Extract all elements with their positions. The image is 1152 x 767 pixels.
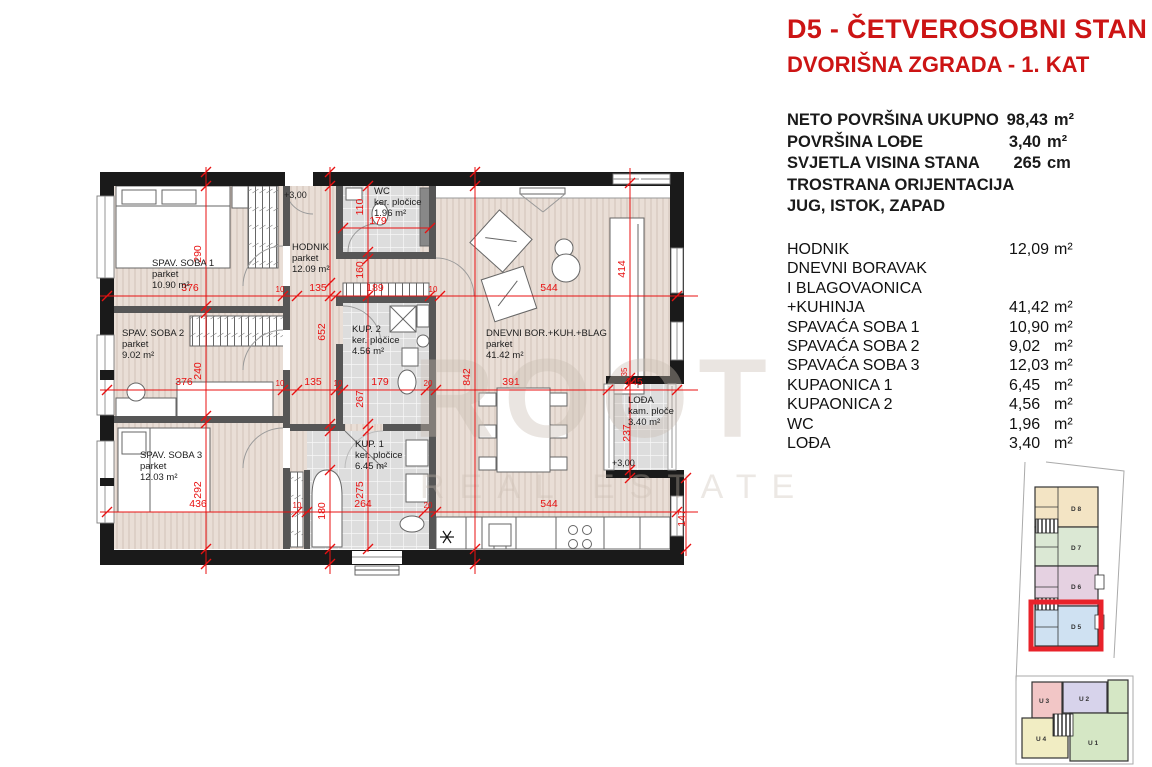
summary-label: JUG, ISTOK, ZAPAD bbox=[787, 196, 981, 218]
room-list-unit: m² bbox=[1054, 337, 1087, 356]
dimension-label: 10 bbox=[276, 379, 285, 388]
summary-label: SVJETLA VISINA STANA bbox=[787, 153, 981, 175]
dimension-label: 652 bbox=[316, 323, 328, 341]
room-floor-label: ker. pločice bbox=[374, 197, 422, 208]
room-list-label: KUPAONICA 2 bbox=[787, 395, 1009, 414]
wardrobe-1 bbox=[248, 186, 278, 268]
room-area-label: 9.02 m² bbox=[122, 350, 154, 361]
room-list-label: SPAVAĆA SOBA 1 bbox=[787, 318, 1009, 337]
level-marker: +3,00 bbox=[284, 190, 307, 200]
window-bedroom1 bbox=[97, 196, 114, 278]
window-symbol bbox=[520, 188, 565, 194]
burner bbox=[583, 526, 592, 535]
summary-unit bbox=[1041, 196, 1085, 218]
room-list-row: SPAVAĆA SOBA 312,03m² bbox=[787, 356, 1087, 375]
site-unit bbox=[1108, 680, 1128, 713]
room-label: SPAV. SOBA 1 bbox=[152, 258, 214, 269]
summary-row: NETO POVRŠINA UKUPNO98,43m² bbox=[787, 110, 1085, 132]
summary-value: 265 bbox=[981, 153, 1041, 175]
wc-sink bbox=[346, 188, 362, 200]
summary-unit: cm bbox=[1041, 153, 1085, 175]
room-list-value: 41,42 bbox=[1009, 298, 1054, 317]
watermark-line1: ROOT bbox=[413, 336, 777, 461]
room-list-unit bbox=[1054, 259, 1087, 278]
summary-label: POVRŠINA LOĐE bbox=[787, 132, 981, 154]
level-marker: +3,00 bbox=[612, 458, 635, 468]
dimension-label: 20 bbox=[424, 379, 433, 388]
dimension-label: 179 bbox=[371, 376, 389, 388]
room-list-label: I BLAGOVAONICA bbox=[787, 279, 1009, 298]
kitchen-counter bbox=[436, 517, 670, 549]
room-list-label: SPAVAĆA SOBA 2 bbox=[787, 337, 1009, 356]
dimension-label: 376 bbox=[175, 376, 193, 388]
room-list-label: HODNIK bbox=[787, 240, 1009, 259]
site-unit-label: D 7 bbox=[1071, 545, 1082, 552]
room-floor-label: ker. pločice bbox=[352, 335, 400, 346]
site-unit-d5 bbox=[1035, 606, 1098, 646]
summary-label: NETO POVRŠINA UKUPNO bbox=[787, 110, 999, 132]
oven bbox=[489, 524, 511, 546]
room-list-label: DNEVNI BORAVAK bbox=[787, 259, 1009, 278]
room-label: WC bbox=[374, 186, 390, 197]
dimension-label: 189 bbox=[366, 282, 384, 294]
room-list-value: 10,90 bbox=[1009, 318, 1054, 337]
room-list-row: SPAVAĆA SOBA 110,90m² bbox=[787, 318, 1087, 337]
summary-row: TROSTRANA ORIJENTACIJA bbox=[787, 175, 1085, 197]
room-list-row: DNEVNI BORAVAK bbox=[787, 259, 1087, 278]
site-unit-label: U 4 bbox=[1036, 736, 1047, 743]
site-plan-upper bbox=[1016, 462, 1124, 682]
room-list-row: KUPAONICA 24,56m² bbox=[787, 395, 1087, 414]
room-area-label: 12.03 m² bbox=[140, 472, 178, 483]
room-list-value: 4,56 bbox=[1009, 395, 1054, 414]
room-list-label: +KUHINJA bbox=[787, 298, 1009, 317]
dimension-label: 160 bbox=[354, 261, 366, 279]
dimension-label: 544 bbox=[540, 282, 558, 294]
site-unit-u1 bbox=[1070, 713, 1128, 761]
room-list-label: SPAVAĆA SOBA 3 bbox=[787, 356, 1009, 375]
room-floor-label: kam. ploče bbox=[628, 406, 674, 417]
room-list-unit: m² bbox=[1054, 395, 1087, 414]
page-title: D5 - ČETVEROSOBNI STAN bbox=[787, 14, 1147, 45]
watermark-line2: REAL ESTATE bbox=[420, 468, 809, 506]
chair bbox=[127, 383, 145, 401]
room-label: KUP. 2 bbox=[352, 324, 381, 335]
summary-value bbox=[1014, 175, 1054, 197]
summary-unit: m² bbox=[1041, 132, 1085, 154]
room-list-value: 12,09 bbox=[1009, 240, 1054, 259]
room-label: KUP. 1 bbox=[355, 439, 384, 450]
room-floor-label: parket bbox=[122, 339, 149, 350]
room-list-value: 12,03 bbox=[1009, 356, 1054, 375]
site-unit-label: U 1 bbox=[1088, 740, 1099, 747]
hall-wardrobe bbox=[343, 283, 429, 296]
room-list-unit: m² bbox=[1054, 415, 1087, 434]
room-floor-label: ker. pločice bbox=[355, 450, 403, 461]
burner bbox=[569, 540, 578, 549]
site-unit-label: U 2 bbox=[1079, 696, 1090, 703]
room-list-value: 3,40 bbox=[1009, 434, 1054, 453]
summary-row: SVJETLA VISINA STANA265cm bbox=[787, 153, 1085, 175]
room-list-unit: m² bbox=[1054, 240, 1087, 259]
room-list-row: WC1,96m² bbox=[787, 415, 1087, 434]
toilet-1 bbox=[400, 516, 424, 532]
room-list-row: I BLAGOVAONICA bbox=[787, 279, 1087, 298]
summary-unit: m² bbox=[1048, 110, 1085, 132]
room-floor-label: parket bbox=[292, 253, 319, 264]
dimension-label: 436 bbox=[189, 498, 207, 510]
room-list-unit: m² bbox=[1054, 298, 1087, 317]
summary-table: NETO POVRŠINA UKUPNO98,43m²POVRŠINA LOĐE… bbox=[787, 110, 1085, 218]
room-label: LOĐA bbox=[628, 395, 655, 406]
dimension-label: 110 bbox=[354, 198, 366, 215]
room-list-value bbox=[1009, 259, 1054, 278]
dimension-label: 267 bbox=[354, 390, 366, 408]
burner bbox=[569, 526, 578, 535]
room-list-unit: m² bbox=[1054, 434, 1087, 453]
room-label: DNEVNI BOR.+KUH.+BLAG bbox=[486, 328, 607, 339]
watermark: ROOT REAL ESTATE bbox=[413, 336, 809, 506]
dimension-label: 10 bbox=[429, 285, 438, 294]
dimension-label: 145 bbox=[625, 376, 643, 388]
room-list-unit: m² bbox=[1054, 356, 1087, 375]
room-area-label: 12.09 m² bbox=[292, 264, 330, 275]
room-list-label: LOĐA bbox=[787, 434, 1009, 453]
summary-unit bbox=[1054, 175, 1085, 197]
room-list-unit: m² bbox=[1054, 376, 1087, 395]
dimension-label: 544 bbox=[540, 498, 558, 510]
burner bbox=[583, 540, 592, 549]
room-label: SPAV. SOBA 2 bbox=[122, 328, 184, 339]
dimension-label: 10 bbox=[293, 501, 302, 510]
dimension-label: 10 bbox=[276, 285, 285, 294]
washing-machine bbox=[417, 305, 429, 327]
dimension-label: 20 bbox=[424, 501, 433, 510]
room-list-row: +KUHINJA41,42m² bbox=[787, 298, 1087, 317]
room-list-row: SPAVAĆA SOBA 29,02m² bbox=[787, 337, 1087, 356]
coffee-table bbox=[552, 254, 580, 282]
dimension-label: 147 bbox=[676, 509, 688, 527]
room-list-value: 6,45 bbox=[1009, 376, 1054, 395]
room-area-label: 10.90 m² bbox=[152, 280, 190, 291]
dimension-label: 10 bbox=[334, 379, 343, 388]
room-area-label: 41.42 m² bbox=[486, 350, 524, 361]
dimension-label: 391 bbox=[502, 376, 520, 388]
room-list-label: KUPAONICA 1 bbox=[787, 376, 1009, 395]
summary-value bbox=[981, 196, 1041, 218]
room-floor-label: parket bbox=[486, 339, 513, 350]
dimension-label: 264 bbox=[354, 498, 372, 510]
dimension-label: 135 bbox=[304, 376, 322, 388]
dimension-label: 240 bbox=[192, 362, 204, 380]
entry-door-opening bbox=[285, 172, 313, 186]
dimension-label: 292 bbox=[192, 481, 204, 499]
dimension-label: 180 bbox=[316, 502, 328, 520]
room-floor-label: parket bbox=[152, 269, 179, 280]
dimension-label: 275 bbox=[354, 481, 366, 499]
site-unit-label: U 3 bbox=[1039, 698, 1050, 705]
dimension-label: 414 bbox=[616, 260, 628, 278]
room-label: SPAV. SOBA 3 bbox=[140, 450, 202, 461]
page-subtitle: DVORIŠNA ZGRADA - 1. KAT bbox=[787, 52, 1089, 78]
room-list-label: WC bbox=[787, 415, 1009, 434]
dimension-label: 135 bbox=[309, 282, 327, 294]
room-list-value: 1,96 bbox=[1009, 415, 1054, 434]
room-label: HODNIK bbox=[292, 242, 330, 253]
summary-row: POVRŠINA LOĐE3,40m² bbox=[787, 132, 1085, 154]
room-list-unit: m² bbox=[1054, 318, 1087, 337]
room-floor-label: parket bbox=[140, 461, 167, 472]
site-unit-label: D 6 bbox=[1071, 584, 1082, 591]
room-area-label: 4.56 m² bbox=[352, 346, 384, 357]
room-list-unit bbox=[1054, 279, 1087, 298]
summary-value: 3,40 bbox=[981, 132, 1041, 154]
dimension-label: 842 bbox=[461, 368, 473, 386]
summary-label: TROSTRANA ORIJENTACIJA bbox=[787, 175, 1014, 197]
summary-value: 98,43 bbox=[999, 110, 1048, 132]
summary-row: JUG, ISTOK, ZAPAD bbox=[787, 196, 1085, 218]
room-area-label: 1.96 m² bbox=[374, 208, 406, 219]
stairwell bbox=[1036, 519, 1058, 533]
wardrobe-2 bbox=[190, 316, 286, 346]
dimension-label: 35 bbox=[620, 367, 629, 376]
room-area-label: 6.45 m² bbox=[355, 461, 387, 472]
site-unit-label: D 8 bbox=[1071, 506, 1082, 513]
room-list-value bbox=[1009, 279, 1054, 298]
room-list-row: LOĐA3,40m² bbox=[787, 434, 1087, 453]
site-unit-label: D 5 bbox=[1071, 624, 1082, 631]
room-list-row: HODNIK12,09m² bbox=[787, 240, 1087, 259]
room-list-value: 9,02 bbox=[1009, 337, 1054, 356]
room-area-list: HODNIK12,09m²DNEVNI BORAVAKI BLAGOVAONIC… bbox=[787, 240, 1087, 453]
site-plan-lower bbox=[1016, 676, 1133, 764]
stairwell bbox=[1053, 714, 1073, 736]
room-list-row: KUPAONICA 16,45m² bbox=[787, 376, 1087, 395]
room-area-label: 3.40 m² bbox=[628, 417, 660, 428]
